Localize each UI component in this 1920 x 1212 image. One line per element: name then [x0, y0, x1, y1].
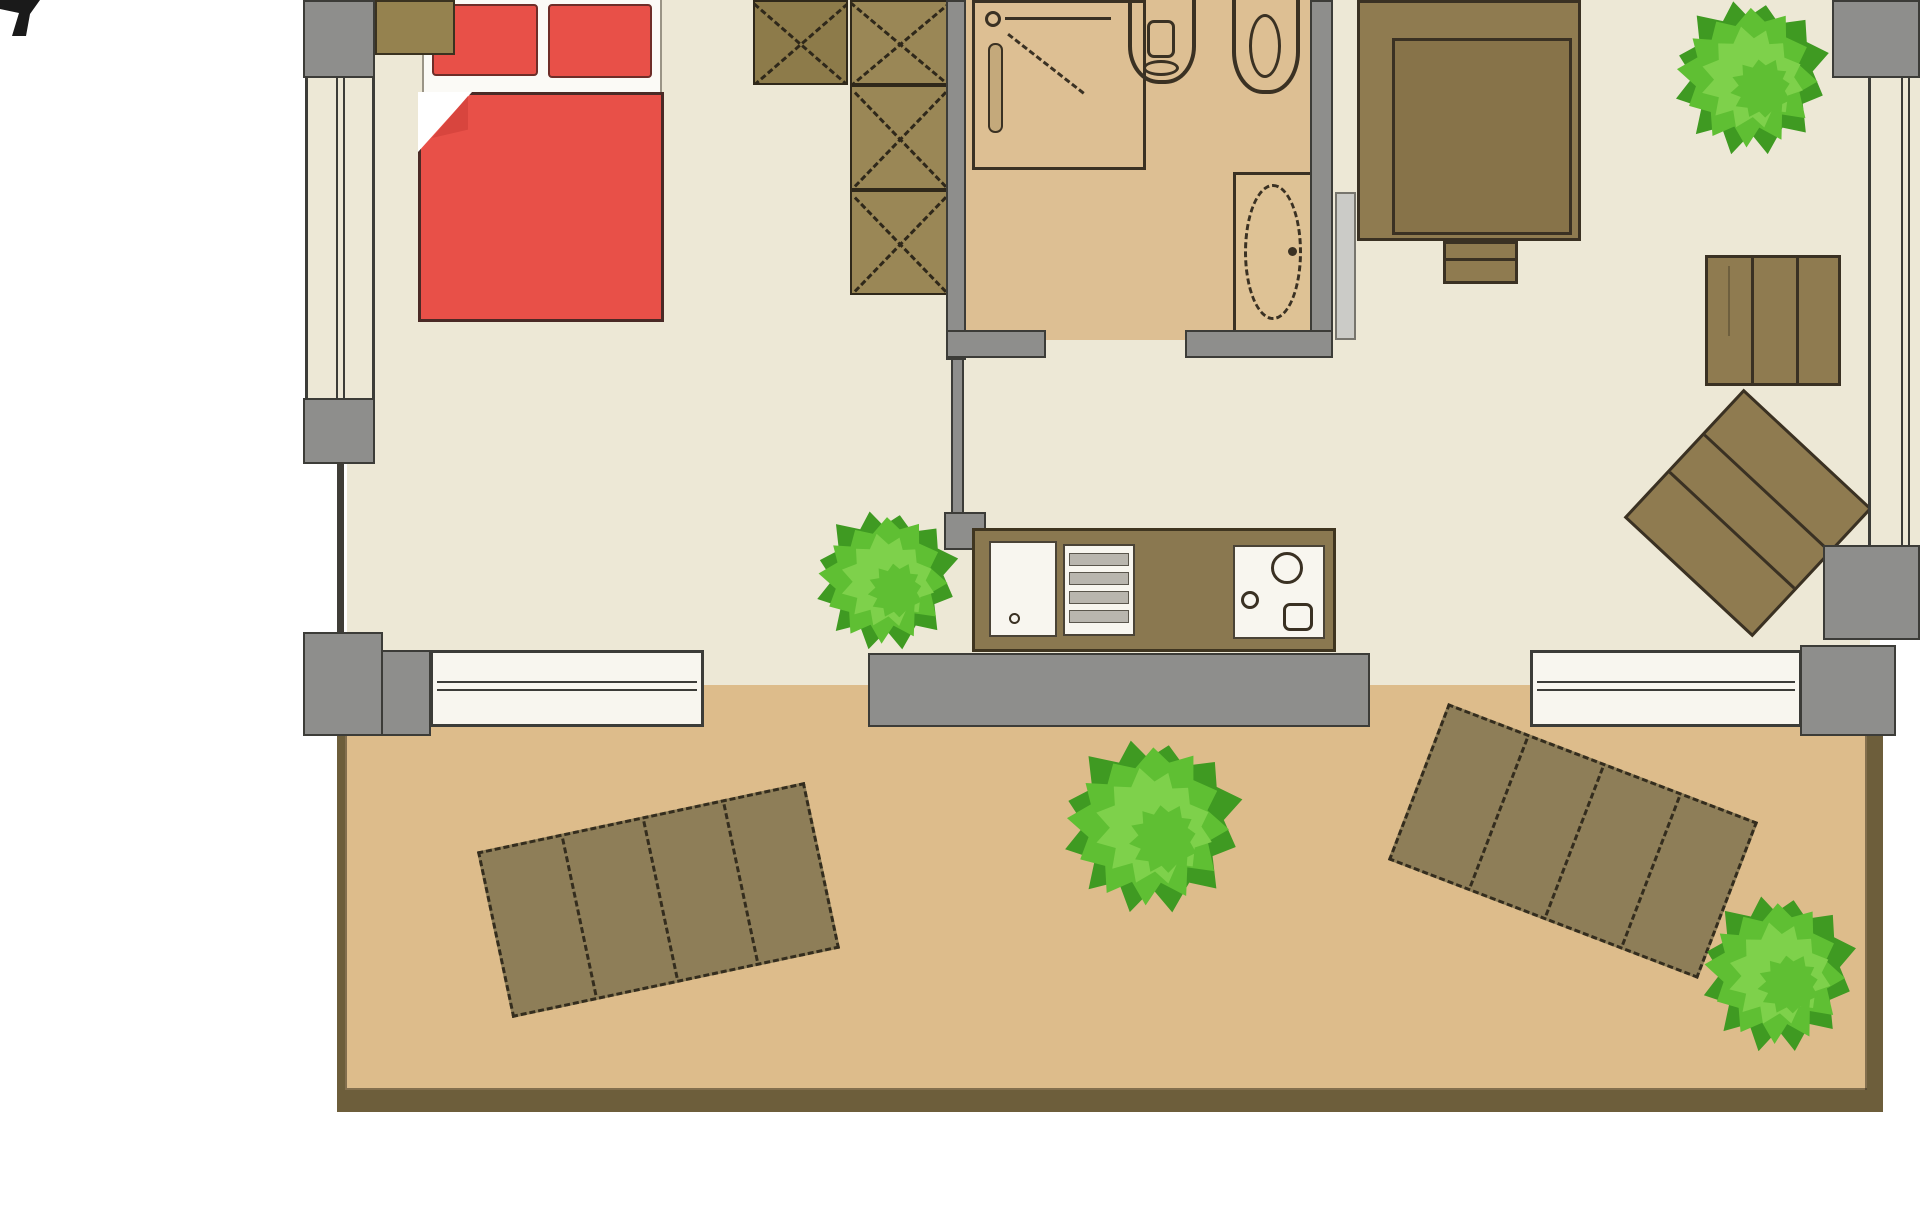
- wall-bathroom-left: [946, 0, 966, 360]
- shower-rail: [988, 43, 1003, 133]
- lounger-slat-line: [1621, 796, 1680, 945]
- kitchen-counter: [972, 528, 1336, 652]
- cabinet-shelf: [1705, 255, 1841, 386]
- wall-kitchen-bottom: [868, 653, 1370, 727]
- shelf-plank-line: [1796, 258, 1799, 383]
- wall-bathroom-right: [1310, 0, 1333, 358]
- kitchen-cabinet-door: [989, 541, 1057, 637]
- chair-line: [1446, 258, 1515, 261]
- toilet-seat: [1147, 20, 1175, 58]
- plant-icon: [1677, 5, 1823, 155]
- kitchen-sink: [1233, 545, 1325, 639]
- window-left: [305, 74, 375, 400]
- kitchen-drawer-grill: [1063, 544, 1135, 636]
- grill-bar: [1069, 591, 1129, 604]
- desk-chair: [1443, 241, 1518, 284]
- wall-pillar: [1823, 545, 1920, 640]
- wall-pillar: [303, 398, 375, 464]
- window-glass-line: [1901, 74, 1903, 552]
- wall-divider-thin: [951, 358, 964, 516]
- wall-pillar: [303, 0, 375, 78]
- shower-stall: [972, 0, 1146, 170]
- desk: [1357, 0, 1581, 241]
- window-glass-line: [343, 74, 345, 400]
- cabinet-knob-icon: [1009, 613, 1020, 624]
- washbasin: [1233, 172, 1315, 334]
- toilet-base: [1143, 60, 1179, 76]
- north-mark-icon: [0, 0, 46, 38]
- window-bottom-left: [430, 650, 704, 727]
- window-right: [1868, 74, 1920, 552]
- window-glass-line: [336, 74, 338, 400]
- bidet-bowl: [1249, 14, 1281, 78]
- shower-head-icon: [985, 11, 1001, 27]
- bed-pillow: [548, 4, 652, 78]
- window-glass-line: [437, 681, 697, 683]
- bidet-icon: [1232, 0, 1300, 94]
- washbasin-faucet-icon: [1288, 247, 1297, 256]
- grill-bar: [1069, 572, 1129, 585]
- window-glass-line: [1537, 681, 1795, 683]
- table-slat-line: [1704, 434, 1830, 552]
- grill-bar: [1069, 553, 1129, 566]
- wall-pillar-step: [381, 650, 431, 736]
- wardrobe-box-icon: [753, 0, 848, 85]
- plant-icon: [1066, 745, 1236, 913]
- wardrobe-box-icon: [850, 85, 950, 190]
- sink-basin-round: [1271, 552, 1303, 584]
- wall-bathroom-bottom-right: [1185, 330, 1333, 358]
- wardrobe-box-icon: [850, 190, 950, 295]
- wall-pillar-corner: [303, 632, 383, 736]
- floor-plan: [0, 0, 1920, 1212]
- wall-pillar: [1832, 0, 1920, 78]
- window-glass-line: [437, 689, 697, 691]
- lounger-slat-line: [1545, 767, 1604, 916]
- lounger-slat-line: [642, 821, 678, 978]
- lounger-slat-line: [722, 804, 758, 961]
- window-glass-line: [1908, 74, 1910, 552]
- lounger-slat-line: [1469, 738, 1528, 887]
- plant-icon: [1705, 900, 1850, 1052]
- wall-bathroom-bottom-left: [946, 330, 1046, 358]
- lounger-slat-line: [561, 838, 597, 995]
- plant-icon: [818, 515, 953, 650]
- wall-thin-left: [337, 462, 344, 636]
- desk-top: [1392, 38, 1572, 235]
- shower-spray-line: [1007, 33, 1084, 94]
- wall-pillar-corner: [1800, 645, 1896, 736]
- top-wall-cabinet: [375, 0, 455, 55]
- window-bottom-right: [1530, 650, 1802, 727]
- toilet-icon: [1128, 0, 1196, 84]
- sink-faucet-icon: [1241, 591, 1259, 609]
- wardrobe-box-icon: [850, 0, 950, 85]
- shelf-plank-line: [1751, 258, 1754, 383]
- table-slat-line: [1669, 471, 1795, 589]
- window-glass-line: [1537, 689, 1795, 691]
- bathroom-door-leaf: [1335, 192, 1356, 340]
- sink-basin-square: [1283, 603, 1313, 631]
- shower-arm-line: [1005, 17, 1111, 20]
- shelf-grain-line: [1728, 266, 1730, 336]
- grill-bar: [1069, 610, 1129, 623]
